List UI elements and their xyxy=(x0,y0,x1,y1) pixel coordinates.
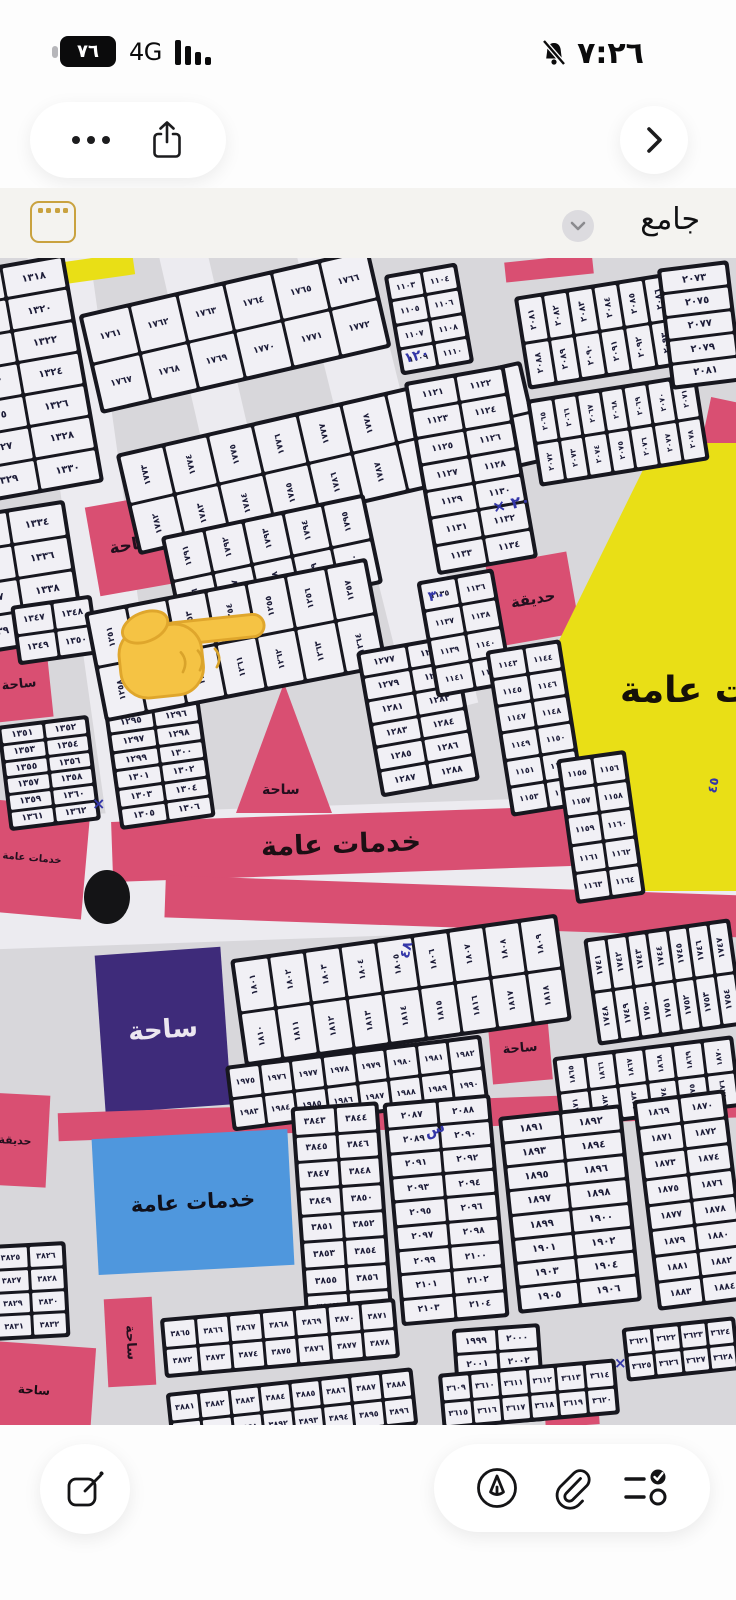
plot-block: ٢٠٧٣٢٠٧٥٢٠٧٧٢٠٧٩٢٠٨١ xyxy=(657,260,736,390)
plot-block: ١٨٩١١٨٩٢١٨٩٣١٨٩٤١٨٩٥١٨٩٦١٨٩٧١٨٩٨١٨٩٩١٩٠٠… xyxy=(498,1104,642,1314)
plot-cell: ١١٢١ xyxy=(408,378,457,410)
plot-cell: ١٧٦٦ xyxy=(321,258,376,307)
plot-cell: ٣٨٦٨ xyxy=(263,1311,295,1338)
battery-cap xyxy=(52,46,58,58)
plot-cell: ١١٤٧ xyxy=(498,703,534,732)
plot-cell: ١٣٥٦ xyxy=(49,753,91,772)
network-label: 4G xyxy=(129,38,162,66)
plot-cell: ١٩٠٣ xyxy=(518,1259,576,1286)
plot-cell: ١١٣٤ xyxy=(485,530,534,562)
zone-services-strip-label: خدمات عامة xyxy=(261,828,422,861)
plot-cell: ٣٨٤٦ xyxy=(338,1132,378,1158)
plot-cell: ١٣٠٦ xyxy=(167,798,211,820)
back-button[interactable] xyxy=(620,106,688,174)
tools-pill xyxy=(434,1444,710,1532)
plot-cell: ٣٨٨١ xyxy=(170,1394,200,1420)
plot-cell: ١١٥٨ xyxy=(597,782,630,811)
plot-cell: ٢٠٠٠ xyxy=(497,1327,537,1350)
map-photo[interactable]: ساحةساحةحديقةخدمات عامةساحةخدمات عامةخدم… xyxy=(0,258,736,1425)
zone-pink-bottomleft-label: ساحة xyxy=(17,1383,50,1397)
plot-cell: ٣٨٢٨ xyxy=(30,1268,63,1289)
plot-cell: ١٣٠٢ xyxy=(162,760,206,782)
plot-cell: ١٨١١ xyxy=(278,1004,318,1057)
plot-cell: ١٧٤٢ xyxy=(608,937,632,987)
plot-cell: ٢٠٦٦ xyxy=(554,396,581,437)
plot-cell: ١٧٧٨ xyxy=(343,396,395,451)
plot-cell: ١٨٠٤ xyxy=(342,943,382,996)
plot-cell: ١٧٩٣ xyxy=(245,515,290,562)
zone-pink-bottomleft: ساحة xyxy=(0,1340,96,1425)
plot-cell: ١٣٣٥ xyxy=(0,546,15,585)
plot-cell: ١٧٧٥ xyxy=(209,427,261,482)
plot-cell: ٣٨٤٧ xyxy=(298,1161,338,1187)
plot-cell: ١٨٧٠ xyxy=(703,1040,733,1074)
plot-cell: ٣٦١٤ xyxy=(586,1363,614,1388)
plot-cell: ١١٦٠ xyxy=(601,810,634,839)
plot-cell: ١١٥٩ xyxy=(569,815,602,844)
plot-cell: ١٩٧٧ xyxy=(292,1058,324,1089)
plot-cell: ١٨٩٧ xyxy=(510,1187,568,1214)
plot-cell: ١٩٠٢ xyxy=(574,1228,632,1255)
plot-cell: ١١٢٨ xyxy=(470,450,519,482)
plot-cell: ١٧٧٤ xyxy=(165,437,217,492)
plot-cell: ١١٣٩ xyxy=(431,635,468,666)
plot-cell: ٣٨٨٧ xyxy=(351,1375,381,1401)
attach-paperclip-icon[interactable] xyxy=(549,1465,593,1511)
plot-cell: ١٨٧٨ xyxy=(693,1196,736,1224)
plot-cell: ٣٨٧٨ xyxy=(364,1330,396,1357)
plot-cell: ١٨٦٨ xyxy=(645,1047,675,1081)
plot-cell: ٣٦١٣ xyxy=(557,1365,585,1390)
plot-cell: ٣٨٨٤ xyxy=(261,1384,291,1410)
plot-cell: ٣٨٧٧ xyxy=(331,1332,363,1359)
plot-cell: ٣٨٣٠ xyxy=(32,1291,65,1312)
plot-cell: ٢٠٨٣ xyxy=(569,289,598,334)
plot-cell: ٣٨٤٨ xyxy=(340,1159,380,1185)
plot-cell: ١١٣٧ xyxy=(426,607,463,638)
plot-cell: ١٩٨٢ xyxy=(449,1039,481,1070)
plot-cell: ٢٠٨٢ xyxy=(544,293,573,338)
plot-cell: ٢٠٦٥ xyxy=(531,400,558,441)
plot-cell: ١٨٠٦ xyxy=(413,933,453,986)
plot-cell: ١٨٧٢ xyxy=(684,1119,727,1147)
plot-cell: ٣٦١٦ xyxy=(473,1398,501,1423)
plot-cell: ١٨٨٤ xyxy=(703,1273,736,1301)
plot-cell: ١٢٦٣ xyxy=(297,622,343,679)
share-icon[interactable] xyxy=(150,120,184,160)
plot-cell: ١٧٤٧ xyxy=(709,923,733,973)
plot-cell: ٣٦١١ xyxy=(500,1370,528,1395)
plot-cell: ١٣٥٥ xyxy=(5,758,47,777)
plot-cell: ١١٠٣ xyxy=(388,273,423,299)
plot-cell: ١٨٠١ xyxy=(235,958,275,1011)
document-title[interactable]: جامع xyxy=(640,202,700,237)
plot-cell: ٣٨٥١ xyxy=(302,1215,342,1241)
plot-cell: ٣٨٦٦ xyxy=(197,1317,229,1344)
plot-cell: ١٣٢٩ xyxy=(0,461,38,500)
plot-cell: ٣٦٢٠ xyxy=(588,1388,616,1413)
plot-cell: ١٢٥٦ xyxy=(287,570,333,627)
plot-cell: ١١٢٤ xyxy=(461,396,510,428)
plot-cell: ١٣٠٣ xyxy=(119,785,163,807)
checklist-icon[interactable] xyxy=(622,1466,670,1510)
plot-cell: ١٨٧٠ xyxy=(681,1094,724,1122)
plot-cell: ٣٨٩٢ xyxy=(263,1411,293,1425)
plot-cell: ١٩٠٥ xyxy=(520,1283,578,1310)
plot-cell: ١٨١٨ xyxy=(528,969,568,1022)
plot-cell: ١١٤٦ xyxy=(529,670,565,699)
plot-cell: ١١٠٤ xyxy=(422,267,457,293)
plot-cell: ٣٦٢٦ xyxy=(656,1351,682,1375)
plot-cell: ١٨٩٣ xyxy=(505,1139,563,1166)
zone-services-left-small-label: خدمات عامة xyxy=(2,851,62,866)
plot-cell: ٣٦٠٩ xyxy=(442,1375,470,1400)
plot-cell: ١١٠٧ xyxy=(397,321,432,347)
plot-cell: ٣٦١٠ xyxy=(471,1373,499,1398)
plot-cell: ٢٠٧٣ xyxy=(561,437,588,478)
plot-cell: ١١٢٦ xyxy=(466,423,515,455)
plot-cell: ٢١٠٤ xyxy=(455,1292,505,1317)
plot-cell: ٣٨٨٩ xyxy=(173,1420,203,1425)
plot-cell: ١٧٦١ xyxy=(83,308,138,363)
plot-cell: ١١٢٣ xyxy=(413,405,462,437)
plot-cell: ١٨١٢ xyxy=(313,999,353,1052)
plot-cell: ١٧٧٦ xyxy=(254,417,306,472)
plot-cell: ١٨٩٤ xyxy=(564,1132,622,1159)
plot-cell: ١١٠٥ xyxy=(393,297,428,323)
plot-cell: ٣٨٨٥ xyxy=(291,1381,321,1407)
plot-cell: ١٧٩٥ xyxy=(324,498,369,545)
handwritten-annotation: × xyxy=(92,794,105,813)
plot-cell: ١٩٠١ xyxy=(515,1235,573,1262)
plot-cell: ٢٠٧٧ xyxy=(655,422,682,463)
plot-cell: ٢٠٨٨ xyxy=(438,1098,488,1123)
plot-cell: ٢٠٦٨ xyxy=(601,389,628,430)
plot-cell: ٢٠٧٥ xyxy=(608,430,635,471)
plot-cell: ٣٨٥٤ xyxy=(345,1238,385,1264)
plot-cell: ٢٠٦٩ xyxy=(625,385,652,426)
plot-cell: ٣٨٨٨ xyxy=(382,1372,412,1398)
plot-cell: ١٢٩٧ xyxy=(111,729,155,751)
plot-cell: ١٣٥٤ xyxy=(47,736,89,755)
phone-screen: ٧٦ 4G ٧:٢٦ xyxy=(0,0,736,1600)
plot-cell: ١٩٨١ xyxy=(418,1043,450,1074)
plot-cell: ١٣٦٠ xyxy=(53,786,95,805)
plot-cell: ٢١٠٠ xyxy=(451,1243,501,1268)
plot-cell: ١٩٧٥ xyxy=(229,1066,261,1097)
plot-cell: ١٧٩١ xyxy=(165,532,210,579)
plot-cell: ٣٨٢٧ xyxy=(0,1270,28,1291)
plot-cell: ١٨٩١ xyxy=(502,1115,560,1142)
plot-cell: ٣٨٥٣ xyxy=(304,1241,344,1267)
plot-cell: ٣٨٥٢ xyxy=(344,1212,384,1238)
plot-cell: ٢٠٩٦ xyxy=(447,1195,497,1220)
plot-cell: ١٣٣٦ xyxy=(13,538,71,577)
plot-cell: ١٣٥٣ xyxy=(3,741,45,760)
plot-cell: ٣٨٨٣ xyxy=(230,1387,260,1413)
plot-cell: ١٨٠٩ xyxy=(521,918,561,971)
plot-cell: ٣٦٢٨ xyxy=(710,1345,736,1369)
plot-cell: ١٩٨٣ xyxy=(233,1096,265,1127)
plot-cell: ١٧٦٣ xyxy=(178,286,233,341)
plot-cell: ١٩٨٠ xyxy=(386,1047,418,1078)
zone-services-blue: خدمات عامة xyxy=(92,1129,295,1275)
plot-cell: ١٧٦٢ xyxy=(131,297,186,352)
plot-cell: ١٧٤٤ xyxy=(648,931,672,981)
handwritten-annotation: ٣٠ xyxy=(427,587,447,606)
plot-cell: ٢٠٧٢ xyxy=(537,441,564,482)
zone-saha-purple-label: ساحة xyxy=(127,1015,198,1046)
plot-cell: ٣٨٥٦ xyxy=(347,1265,387,1291)
plot-cell: ١١٥١ xyxy=(507,757,543,786)
plot-cell: ٢٠٩٨ xyxy=(449,1219,499,1244)
plot-cell: ١٨٨١ xyxy=(656,1253,699,1281)
plot-cell: ١٣٤٩ xyxy=(19,632,58,661)
plot-cell: ١١٤٤ xyxy=(525,644,561,673)
plot-cell: ١٨٧٩ xyxy=(653,1227,696,1255)
plot-block: ١٨٦٩١٨٧٠١٨٧١١٨٧٢١٨٧٣١٨٧٤١٨٧٥١٨٧٦١٨٧٧١٨٧٨… xyxy=(632,1089,736,1311)
plot-cell: ٢٠٩١ xyxy=(601,329,630,374)
plot-cell: ٣٨٨٢ xyxy=(200,1391,230,1417)
plot-cell: ٣٨٢٥ xyxy=(0,1247,27,1268)
plot-cell: ١٧٧٧ xyxy=(298,406,350,461)
plot-cell: ١٨٩٨ xyxy=(569,1180,627,1207)
plot-cell: ١١٢٢ xyxy=(456,369,505,401)
plot-cell: ٣٨٨٦ xyxy=(321,1378,351,1404)
plot-cell: ١٨٧٥ xyxy=(646,1176,689,1204)
plot-block: ٣٨٤٣٣٨٤٤٣٨٤٥٣٨٤٦٣٨٤٧٣٨٤٨٣٨٤٩٣٨٥٠٣٨٥١٣٨٥٢… xyxy=(291,1101,394,1325)
zone-hadiqa-left: حديقة xyxy=(0,1092,50,1187)
plot-cell: ٢٠٩٣ xyxy=(393,1175,443,1200)
clock-time: ٧:٢٦ xyxy=(577,36,644,71)
pink-sliver-top xyxy=(504,258,594,283)
plot-cell: ٣٨٦٥ xyxy=(164,1319,196,1346)
plot-cell: ٢٠٦٧ xyxy=(578,393,605,434)
plot-cell: ٣٨٧٢ xyxy=(167,1347,199,1374)
plot-cell: ٣٨٧٣ xyxy=(199,1344,231,1371)
plot-cell: ٣٨٧١ xyxy=(361,1302,393,1329)
markup-pen-icon[interactable] xyxy=(474,1465,520,1511)
zone-saha-left-label: ساحة xyxy=(1,676,37,693)
plot-cell: ١١٤٣ xyxy=(490,649,526,678)
plot-cell: ٢٠٧٤ xyxy=(584,434,611,475)
plot-cell: ١٣٥٩ xyxy=(10,791,52,810)
plot-cell: ١١٢٥ xyxy=(418,431,467,463)
plot-cell: ٣٦٢٥ xyxy=(628,1353,654,1377)
plot-cell: ١٣٦١ xyxy=(12,808,54,827)
plot-cell: ٢٠٩٤ xyxy=(444,1171,494,1196)
plot-cell: ١٩٧٦ xyxy=(261,1062,293,1093)
plot-cell: ٣٨٤٤ xyxy=(336,1105,376,1131)
plot-cell: ١١٦٤ xyxy=(609,866,642,895)
plot-cell: ١٨٩٢ xyxy=(562,1108,620,1135)
plot-cell: ١٧٩٤ xyxy=(285,507,330,554)
plot-cell: ١١٥٣ xyxy=(511,783,547,812)
plot-cell: ١١٣٦ xyxy=(457,573,494,604)
plot-cell: ١١٤٩ xyxy=(503,730,539,759)
plot-cell: ١٨١٠ xyxy=(242,1009,282,1062)
plot-cell: ١٧٥٤ xyxy=(716,974,736,1024)
plot-cell: ١١٤١ xyxy=(436,663,473,694)
status-left: ٧٦ 4G xyxy=(52,36,211,67)
plot-cell: ١١٠٦ xyxy=(427,291,462,317)
plot-cell: ١١٣١ xyxy=(432,512,481,544)
plot-cell: ٣٨٧٠ xyxy=(329,1305,361,1332)
plot-cell: ١٨٧٣ xyxy=(643,1150,686,1178)
plot-cell: ٢٠٧٦ xyxy=(631,426,658,467)
plot-cell: ١٣٠١ xyxy=(117,767,161,789)
plot-cell: ٣٨٤٩ xyxy=(300,1188,340,1214)
plot-cell: ١٧٧٠ xyxy=(237,322,292,377)
plot-cell: ١٨٧١ xyxy=(640,1125,683,1153)
plot-cell: ٣٦١٧ xyxy=(502,1396,530,1421)
plot-cell: ١١٤٨ xyxy=(533,697,569,726)
plot-cell: ١٩٠٠ xyxy=(572,1204,630,1231)
plot-block: ٣٨٢٥٣٨٢٦٣٨٢٧٣٨٢٨٣٨٢٩٣٨٣٠٣٨٣١٣٨٣٢ xyxy=(0,1241,70,1341)
plot-cell: ٣٨٩٤ xyxy=(324,1404,354,1425)
plot-cell: ١١٥٦ xyxy=(593,754,626,783)
zone-saha-small-square-label: ساحة xyxy=(502,1040,538,1056)
plot-cell: ٢٠٩٠ xyxy=(440,1122,490,1147)
plot-block: ٣٦٢١٣٦٢٢٣٦٢٣٣٦٢٤٣٦٢٥٣٦٢٦٣٦٢٧٣٦٢٨ xyxy=(621,1316,736,1382)
plot-cell: ١٧٩٢ xyxy=(205,523,250,570)
plot-cell: ١٨٩٦ xyxy=(567,1156,625,1183)
plot-cell: ١١٤٥ xyxy=(494,676,530,705)
plot-cell: ٣٦١٢ xyxy=(528,1368,556,1393)
plot-cell: ٣٨٤٥ xyxy=(297,1135,337,1161)
plot-cell: ١٨٧٤ xyxy=(687,1145,730,1173)
plot-cell: ١٣٥١ xyxy=(1,725,43,744)
plot-cell: ٣٦١٨ xyxy=(531,1393,559,1418)
status-bar: ٧٦ 4G ٧:٢٦ xyxy=(0,22,736,88)
plot-cell: ١٨٩٥ xyxy=(507,1163,565,1190)
plot-cell: ١٧٥١ xyxy=(656,982,680,1032)
plot-cell: ١٣٥٢ xyxy=(45,719,87,738)
plot-cell: ١٨٨٢ xyxy=(699,1248,736,1276)
plot-cell: ٢٠٩١ xyxy=(391,1151,441,1176)
compose-button[interactable] xyxy=(40,1444,130,1534)
plot-cell: ١٧٦٤ xyxy=(226,275,281,330)
plot-cell: ١٩٧٩ xyxy=(355,1051,387,1082)
plot-cell: ٣٦٢٢ xyxy=(653,1326,679,1350)
plot-cell: ١٢٩٩ xyxy=(114,748,158,770)
plot-cell: ١٨٦٥ xyxy=(557,1058,587,1092)
plot-cell: ١٨٠٢ xyxy=(270,953,310,1006)
roundabout xyxy=(84,870,130,924)
plot-cell: ٣٨٦٧ xyxy=(230,1314,262,1341)
plot-cell: ٢٠٨٨ xyxy=(525,341,554,386)
plot-cell: ١٧٧١ xyxy=(284,311,339,366)
battery-percent: ٧٦ xyxy=(60,36,116,67)
plot-cell: ١٧٦٥ xyxy=(273,264,328,319)
plot-cell: ١٨٩٩ xyxy=(512,1211,570,1238)
plot-cell: ٣٨٩١ xyxy=(233,1414,263,1425)
plot-cell: ٣٨٩٠ xyxy=(203,1417,233,1425)
plot-cell: ٣٨٣٢ xyxy=(33,1313,66,1334)
plot-cell: ١٨٠٣ xyxy=(306,948,346,1001)
plot-cell: ١٧٦٩ xyxy=(189,333,244,388)
plot-cell: ٣٦٢٤ xyxy=(707,1321,733,1345)
plot-cell: ١٨٠٧ xyxy=(449,928,489,981)
plot-cell: ١٨١٥ xyxy=(421,984,461,1037)
plot-cell: ٢٠٨٤ xyxy=(594,285,623,330)
plot-cell: ١٩٠٦ xyxy=(579,1276,637,1303)
plot-cell: ١٨٧٧ xyxy=(649,1202,692,1230)
plot-cell: ١٧٧٢ xyxy=(332,300,387,355)
plot-cell: ١٣٠٠ xyxy=(159,742,203,764)
plot-cell: ٣٨٣١ xyxy=(0,1315,31,1336)
plot-cell: ٣٨٧٤ xyxy=(232,1341,264,1368)
plot-cell: ١٩٧٨ xyxy=(324,1054,356,1085)
zone-yellow-services-label: خدمات عامة xyxy=(620,673,736,709)
plot-cell: ١١٢٧ xyxy=(423,458,472,490)
plot-cell: ١٧٦٧ xyxy=(94,355,149,410)
plot-cell: ٣٨٢٩ xyxy=(0,1293,30,1314)
plot-cell: ١٨٦٩ xyxy=(674,1043,704,1077)
plot-cell: ١٨١٣ xyxy=(349,994,389,1047)
plot-cell: ٢٠٩٩ xyxy=(400,1248,450,1273)
plot-cell: ١٣٣٠ xyxy=(36,450,100,489)
plot-cell: ١٢٩٨ xyxy=(156,723,200,745)
plot-cell: ٣٨٢٦ xyxy=(29,1245,62,1266)
plot-cell: ١١٣٣ xyxy=(437,539,486,571)
plot-cell: ٢١٠٢ xyxy=(453,1268,503,1293)
plot-cell: ٣٦٢١ xyxy=(626,1329,652,1353)
plot-cell: ٣٨٥٠ xyxy=(342,1185,382,1211)
plot-cell: ١٨٦٩ xyxy=(637,1099,680,1127)
zone-saha-purple: ساحة xyxy=(95,947,232,1113)
plot-cell: ٢٠٩٢ xyxy=(442,1147,492,1172)
battery-indicator: ٧٦ xyxy=(52,36,116,67)
plot-block: ٣٨٨١٣٨٨٢٣٨٨٣٣٨٨٤٣٨٨٥٣٨٨٦٣٨٨٧٣٨٨٨٣٨٨٩٣٨٩٠… xyxy=(166,1367,419,1425)
plot-cell: ٣٨٩٣ xyxy=(294,1407,324,1425)
plot-cell: ١٨١٧ xyxy=(492,974,532,1027)
pointer-finger-emoji xyxy=(106,576,277,720)
plot-cell: ١٧٥٣ xyxy=(696,977,720,1027)
status-right: ٧:٢٦ xyxy=(539,36,644,71)
zone-services-blue-label: خدمات عامة xyxy=(130,1188,255,1215)
plot-cell: ١٧٨٧ xyxy=(354,444,406,499)
title-chevron-down-icon[interactable] xyxy=(562,210,594,242)
plot-cell: ٢٠٩٥ xyxy=(395,1199,445,1224)
plot-cell: ٢٠٨٩ xyxy=(551,337,580,382)
plot-cell: ١٧٧٣ xyxy=(120,448,172,503)
plot-cell: ٣٨٧٥ xyxy=(265,1338,297,1365)
plot-cell: ١٣٠٥ xyxy=(122,804,166,826)
plot-cell: ٣٨٥٥ xyxy=(306,1268,346,1294)
plot-cell: ١٨٨٠ xyxy=(696,1222,736,1250)
zone-saha-vrect: ساحة xyxy=(104,1297,157,1387)
thumbnail-grid-icon[interactable] xyxy=(30,201,76,243)
plot-block: ١٣٤٧١٣٤٨١٣٤٩١٣٥٠ xyxy=(10,595,100,666)
plot-cell: ١٣٥٨ xyxy=(51,769,93,788)
zone-hadiqa-left-label: حديقة xyxy=(0,1134,32,1147)
handwritten-annotation: ٤٥ xyxy=(705,776,723,794)
title-bar: جامع xyxy=(0,188,736,259)
plot-block: ٢٠٨٧٢٠٨٨٢٠٨٩٢٠٩٠٢٠٩١٢٠٩٢٢٠٩٣٢٠٩٤٢٠٩٥٢٠٩٦… xyxy=(382,1094,509,1327)
actions-pill xyxy=(30,102,226,178)
plot-cell: ٣٨٦٩ xyxy=(296,1308,328,1335)
plot-cell: ١٩٩٩ xyxy=(456,1330,496,1353)
plot-cell: ٢٠٨١ xyxy=(673,357,736,385)
plot-cell: ١٣٦٢ xyxy=(55,803,97,822)
plot-cell: ١٧٤٦ xyxy=(689,926,713,976)
plot-cell: ١٢٨٨ xyxy=(428,756,475,784)
plot-cell: ١١٠٨ xyxy=(431,315,466,341)
more-options-icon[interactable] xyxy=(72,136,110,144)
plot-cell: ٢١٠٣ xyxy=(404,1296,454,1321)
nav-bar xyxy=(0,98,736,184)
